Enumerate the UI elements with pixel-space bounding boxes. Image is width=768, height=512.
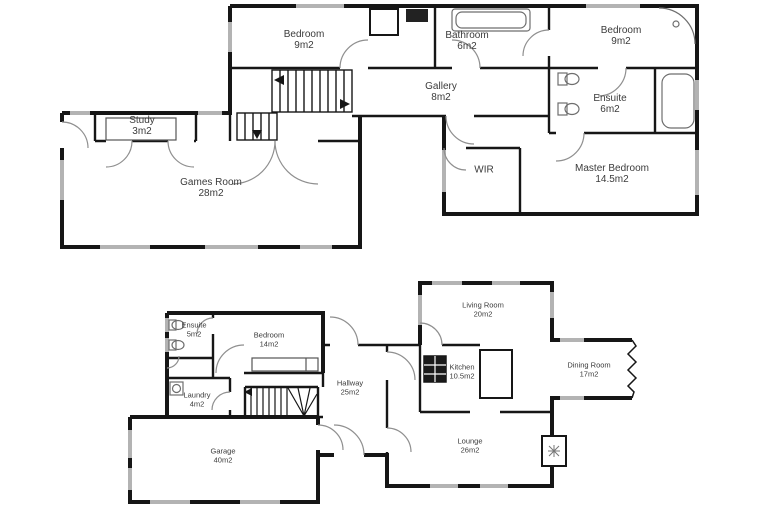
corner-shower-icon [659, 8, 695, 44]
lower-walls-interior [167, 313, 636, 455]
toilet-icon [558, 103, 579, 115]
floor-plan-drawing [0, 0, 768, 512]
shower-icon [370, 9, 398, 35]
fireplace-icon [542, 436, 566, 466]
upper-walls-outer [62, 6, 697, 247]
upper-floor-plan [62, 6, 697, 247]
stove-icon [424, 356, 446, 382]
vanity-icon [406, 9, 428, 22]
lower-windows [130, 283, 584, 502]
laundry-tub-icon [170, 382, 183, 395]
wall-break-zigzag [628, 340, 636, 398]
bed-icon [252, 358, 318, 371]
bathtub-icon [662, 74, 694, 128]
front-door-arc [334, 425, 364, 455]
lower-staircase-icon [244, 387, 317, 417]
lower-walls-outer [130, 283, 632, 502]
kitchen-island [480, 350, 512, 398]
sink-icon [169, 340, 184, 350]
upper-windows [62, 6, 697, 247]
toilet-icon [169, 320, 184, 330]
upper-staircase-icon [237, 70, 352, 140]
lower-fixtures [169, 320, 566, 466]
toilet-icon [558, 73, 579, 85]
upper-walls-interior [95, 6, 697, 214]
lower-floor-plan [130, 283, 636, 502]
desk-icon [106, 118, 176, 140]
floor-plan-page: Bedroom9m2 Bathroom6m2 Bedroom9m2 Galler… [0, 0, 768, 512]
upper-fixtures [106, 8, 695, 140]
